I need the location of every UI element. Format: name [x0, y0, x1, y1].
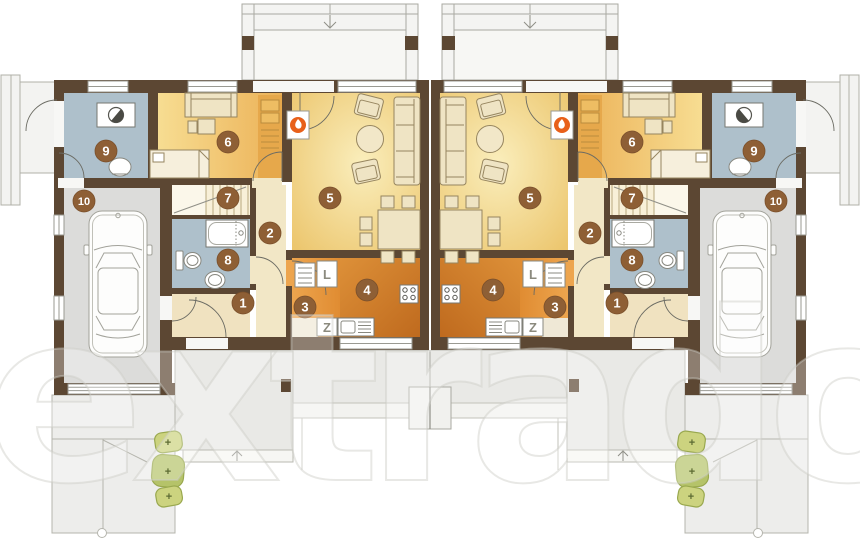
- svg-text:7: 7: [628, 191, 635, 206]
- bathtub: [206, 220, 248, 247]
- svg-text:4: 4: [489, 283, 497, 298]
- svg-text:+: +: [688, 491, 694, 503]
- svg-text:extradom: extradom: [0, 263, 860, 536]
- boiler: [109, 158, 131, 176]
- svg-text:2: 2: [266, 226, 273, 241]
- side-porch: [1, 75, 57, 205]
- svg-text:5: 5: [326, 191, 333, 206]
- svg-text:+: +: [689, 437, 695, 449]
- floor-plan-page: extradom 1 2 3 4 5 6 7 8 9 10 1 2 3 4 5 …: [0, 0, 860, 541]
- svg-text:Z: Z: [529, 320, 537, 335]
- svg-text:+: +: [166, 491, 172, 503]
- svg-text:L: L: [323, 267, 331, 282]
- svg-text:+: +: [689, 466, 695, 478]
- watermark: extradom: [0, 263, 860, 536]
- svg-text:Z: Z: [323, 320, 331, 335]
- back-terrace: [242, 4, 418, 80]
- svg-text:8: 8: [224, 253, 231, 268]
- fireplace-icon: [287, 111, 309, 139]
- svg-text:9: 9: [102, 144, 109, 159]
- svg-text:10: 10: [770, 196, 782, 208]
- svg-text:3: 3: [301, 300, 308, 315]
- svg-text:3: 3: [551, 300, 558, 315]
- svg-text:6: 6: [224, 135, 231, 150]
- washing-machine-icon: [97, 103, 135, 127]
- svg-text:10: 10: [78, 196, 90, 208]
- svg-text:+: +: [165, 437, 171, 449]
- svg-text:8: 8: [628, 253, 635, 268]
- svg-text:6: 6: [628, 135, 635, 150]
- svg-text:L: L: [529, 267, 537, 282]
- svg-text:1: 1: [239, 296, 246, 311]
- svg-text:2: 2: [586, 226, 593, 241]
- svg-text:4: 4: [363, 283, 371, 298]
- floor-plan-canvas: extradom 1 2 3 4 5 6 7 8 9 10 1 2 3 4 5 …: [0, 0, 860, 541]
- svg-text:+: +: [165, 466, 171, 478]
- svg-text:7: 7: [224, 191, 231, 206]
- svg-text:1: 1: [613, 296, 620, 311]
- svg-text:9: 9: [750, 144, 757, 159]
- svg-text:5: 5: [526, 191, 533, 206]
